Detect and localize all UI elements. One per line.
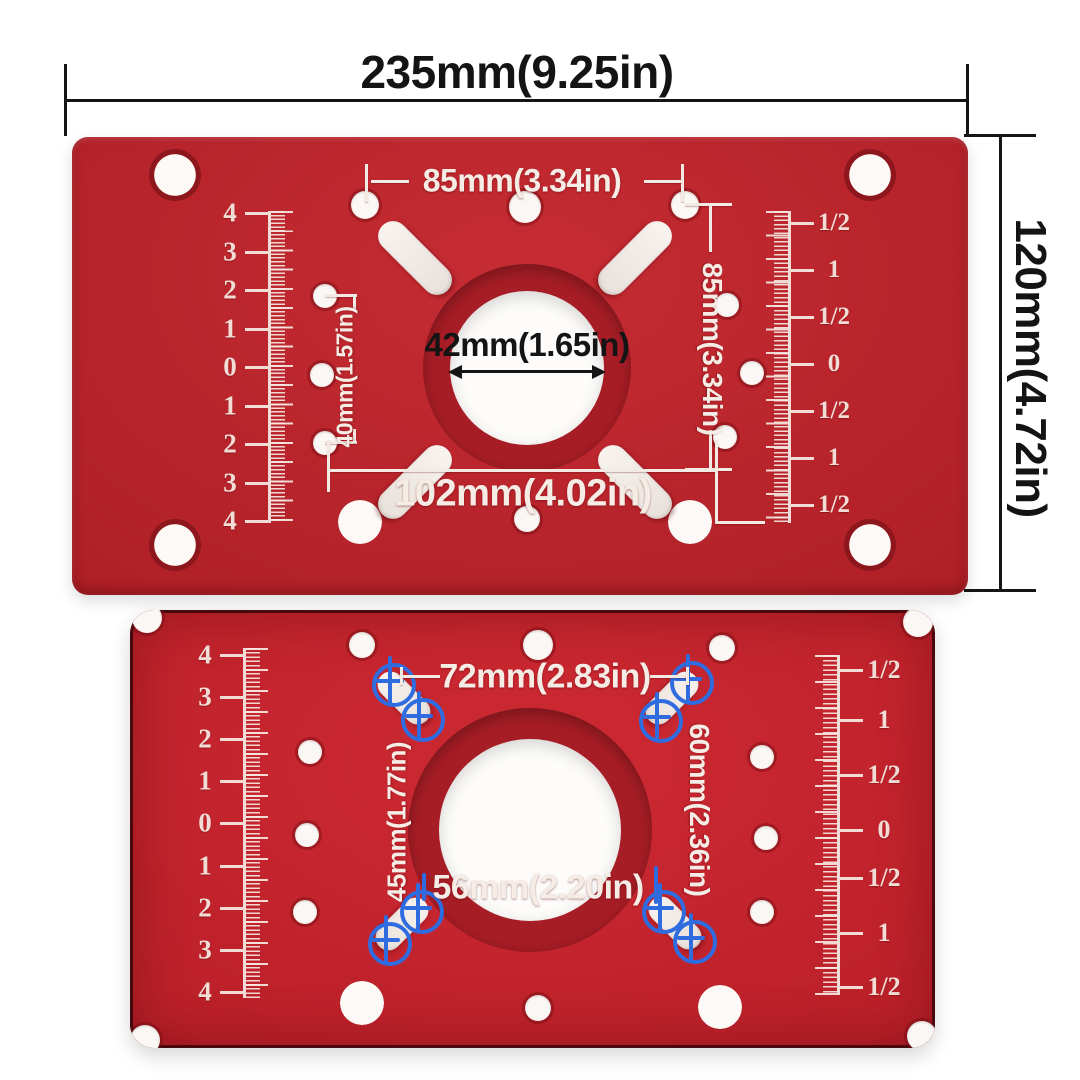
ruler-tick <box>791 222 814 225</box>
ruler-tick <box>220 907 243 910</box>
ruler-label: 3 <box>198 682 212 713</box>
blue-marker-circle <box>368 922 412 966</box>
ruler-tick <box>840 877 863 880</box>
pilot-hole <box>298 740 322 764</box>
ruler-label: 4 <box>198 640 212 671</box>
pilot-hole <box>310 363 334 387</box>
blue-marker-circle <box>673 920 717 964</box>
bottom-hole-spacing-label: 102mm(4.02in) <box>394 473 652 516</box>
dim-line <box>650 675 688 678</box>
extension-tick-bottom <box>964 589 1036 592</box>
ruler-tick <box>245 366 268 369</box>
ruler-tick <box>245 443 268 446</box>
dim-line <box>371 180 409 183</box>
center-bore-arrow-line <box>458 370 596 373</box>
ruler-tick <box>220 654 243 657</box>
bottom-slot-spacing-label: 56mm(2.20in) <box>432 869 643 908</box>
left-slot-spacing-label: 45mm(1.77in) <box>382 742 413 902</box>
left-hole-spacing-label: 40mm(1.57in) <box>332 306 359 447</box>
center-bore <box>450 291 604 445</box>
ruler-label: 4 <box>223 198 237 229</box>
ruler-label: 1/2 <box>818 491 850 519</box>
ruler-label: 2 <box>223 429 237 460</box>
ruler-cm-half-ticks <box>246 648 268 998</box>
marker-tick <box>654 866 658 904</box>
ruler-label: 1 <box>878 918 891 948</box>
extension-tick-top <box>964 134 1036 137</box>
extension-tick-left <box>64 64 67 136</box>
mounting-hole <box>709 635 735 661</box>
counterbore-hole <box>698 985 742 1029</box>
dim-line <box>717 521 765 524</box>
ruler-label: 2 <box>198 724 212 755</box>
ruler-tick <box>791 410 814 413</box>
counterbore-hole <box>340 981 384 1025</box>
ruler-tick <box>840 986 863 989</box>
dim-tick <box>681 164 684 202</box>
ruler-tick <box>840 719 863 722</box>
top-hole-spacing-label: 85mm(3.34in) <box>423 163 622 200</box>
ruler-tick <box>840 932 863 935</box>
top-slot-spacing-label: 72mm(2.83in) <box>439 658 650 697</box>
counterbore-hole <box>338 500 382 544</box>
ruler-tick <box>791 269 814 272</box>
dim-line <box>709 430 712 468</box>
ruler-tick <box>840 829 863 832</box>
ruler-tick <box>791 504 814 507</box>
right-hole-spacing-label: 85mm(3.34in) <box>696 263 728 436</box>
pilot-hole <box>740 361 764 385</box>
ruler-label: 1/2 <box>867 760 900 790</box>
ruler-tick <box>245 405 268 408</box>
router-plate-top-view: 4 3 2 1 0 1 2 3 4 1/2 1 1/2 0 1/2 1 1/2 … <box>72 137 968 595</box>
extension-tick-right <box>966 64 969 136</box>
ruler-label: 1/2 <box>867 863 900 893</box>
marker-tick <box>405 714 433 718</box>
countersunk-hole <box>149 519 201 571</box>
ruler-inch-half-ticks <box>815 655 837 995</box>
pilot-hole <box>295 823 319 847</box>
arrow-left-icon <box>448 365 462 379</box>
pilot-hole <box>754 826 778 850</box>
ruler-label: 1/2 <box>818 303 850 331</box>
ruler-label: 1/2 <box>818 397 850 425</box>
mounting-hole <box>525 995 551 1021</box>
ruler-cm-half-ticks <box>271 211 293 523</box>
corner-hole <box>907 1021 935 1048</box>
ruler-tick <box>245 328 268 331</box>
marker-tick <box>646 906 674 910</box>
ruler-label: 1 <box>198 766 212 797</box>
ruler-inch-half-ticks <box>766 211 788 523</box>
ruler-label: 1 <box>223 314 237 345</box>
ruler-tick <box>840 669 863 672</box>
pilot-hole <box>750 900 774 924</box>
ruler-tick <box>245 482 268 485</box>
corner-hole <box>132 610 162 633</box>
countersunk-hole <box>149 149 201 201</box>
ruler-tick <box>220 780 243 783</box>
ruler-label: 1 <box>198 851 212 882</box>
ruler-tick <box>220 949 243 952</box>
countersunk-hole <box>844 519 896 571</box>
ruler-tick <box>840 774 863 777</box>
ruler-label: 0 <box>223 352 237 383</box>
ruler-tick <box>245 520 268 523</box>
dim-tick <box>327 440 330 492</box>
mounting-slot <box>592 215 678 301</box>
router-plate-dimension-diagram: 235mm(9.25in) 120mm(4.72in) <box>0 0 1080 1080</box>
marker-tick <box>643 715 671 719</box>
ruler-label: 4 <box>223 506 237 537</box>
mounting-hole <box>523 630 553 660</box>
ruler-label: 3 <box>198 935 212 966</box>
ruler-inch-line <box>837 655 840 995</box>
overall-width-label: 235mm(9.25in) <box>360 45 673 99</box>
ruler-label: 4 <box>198 977 212 1008</box>
blue-marker-circle <box>670 661 714 705</box>
dim-line <box>402 675 440 678</box>
dim-line <box>709 206 712 252</box>
pilot-hole <box>293 900 317 924</box>
ruler-label: 0 <box>878 815 891 845</box>
ruler-tick <box>220 738 243 741</box>
ruler-label: 1 <box>828 256 841 284</box>
ruler-tick <box>220 822 243 825</box>
ruler-tick <box>245 289 268 292</box>
ruler-label: 3 <box>223 237 237 268</box>
corner-hole <box>903 610 933 637</box>
right-slot-spacing-label: 60mm(2.36in) <box>683 724 715 897</box>
ruler-label: 0 <box>828 350 841 378</box>
ruler-tick <box>791 457 814 460</box>
ruler-tick <box>245 251 268 254</box>
center-bore-label: 42mm(1.65in) <box>425 326 630 364</box>
marker-tick <box>677 936 705 940</box>
dim-line <box>644 180 682 183</box>
counterbore-hole <box>668 500 712 544</box>
pilot-hole <box>750 745 774 769</box>
marker-tick <box>372 938 400 942</box>
ruler-tick <box>245 212 268 215</box>
ruler-label: 1 <box>223 391 237 422</box>
ruler-label: 0 <box>198 808 212 839</box>
ruler-label: 2 <box>198 893 212 924</box>
ruler-label: 1/2 <box>818 209 850 237</box>
ruler-tick <box>220 696 243 699</box>
mounting-hole <box>349 632 375 658</box>
ruler-label: 2 <box>223 275 237 306</box>
blue-marker-circle <box>401 698 445 742</box>
ruler-label: 1 <box>828 444 841 472</box>
ruler-tick <box>791 363 814 366</box>
countersunk-hole <box>844 149 896 201</box>
mounting-slot <box>372 215 458 301</box>
marker-tick <box>422 873 426 901</box>
dim-tick <box>686 667 689 685</box>
overall-width-dimension-line <box>65 99 968 102</box>
ruler-inch-line <box>788 211 791 523</box>
arrow-right-icon <box>592 365 606 379</box>
corner-hole <box>130 1025 160 1048</box>
blue-marker-circle <box>372 663 416 707</box>
dim-tick <box>365 164 368 202</box>
ruler-label: 1/2 <box>867 972 900 1002</box>
router-plate-bottom-view: 4 3 2 1 0 1 2 3 4 1/2 1 1/2 0 1/2 1 1/2 <box>130 610 935 1048</box>
marker-tick <box>404 906 432 910</box>
ruler-label: 1/2 <box>867 655 900 685</box>
ruler-tick <box>220 991 243 994</box>
ruler-label: 3 <box>223 468 237 499</box>
overall-height-label: 120mm(4.72in) <box>1005 218 1055 517</box>
overall-height-dimension-line <box>999 136 1002 592</box>
ruler-label: 1 <box>878 705 891 735</box>
ruler-tick <box>791 316 814 319</box>
blue-marker-circle <box>639 699 683 743</box>
dim-tick <box>715 440 718 524</box>
ruler-tick <box>220 865 243 868</box>
